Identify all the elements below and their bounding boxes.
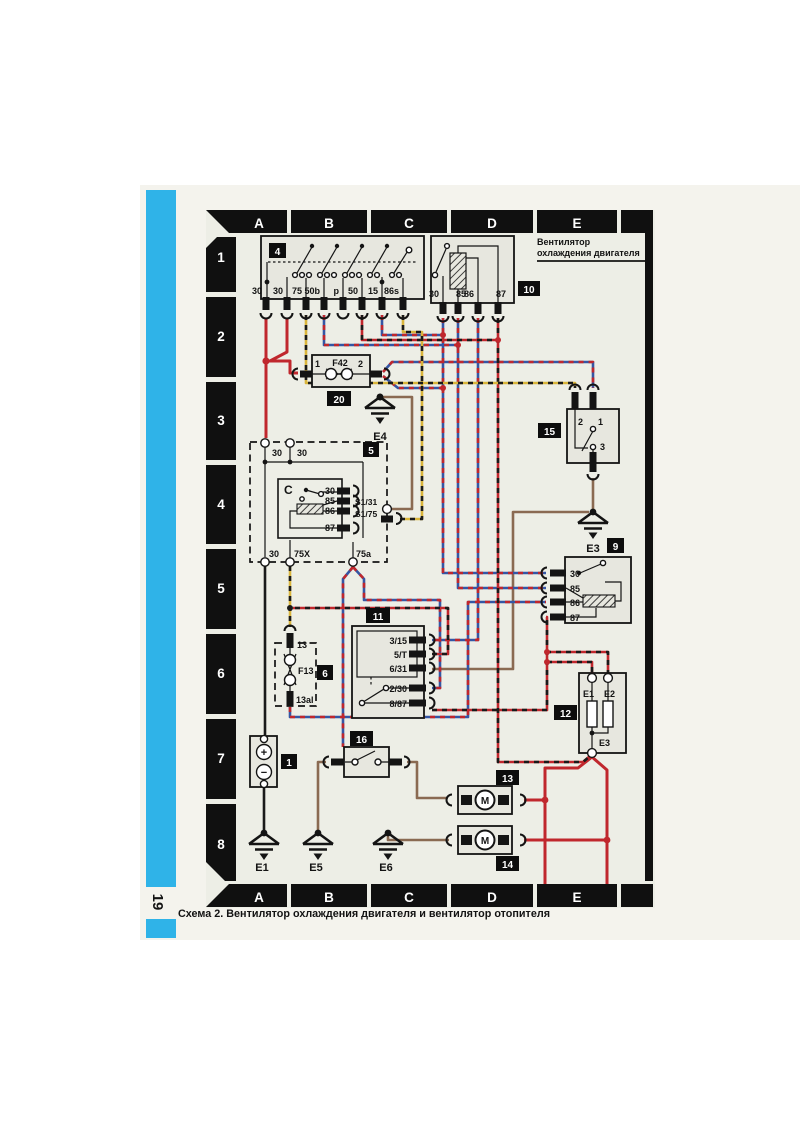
grid-row-label: 6 [217, 666, 225, 681]
svg-text:87: 87 [325, 523, 335, 533]
wiring-diagram-svg: 19 A B C D E A B C D E 1 [0, 0, 800, 1131]
svg-text:6/31: 6/31 [389, 664, 407, 674]
grid-row-label: 7 [217, 751, 225, 766]
c15-pin1: 1 [598, 417, 603, 427]
battery-minus: − [261, 767, 267, 779]
grid-row-label: 5 [217, 581, 225, 596]
f42-pin2: 2 [358, 359, 363, 369]
grid-row-label: 3 [217, 413, 225, 428]
grid-row-label: 1 [217, 250, 225, 265]
c5-link2: S1/75 [355, 509, 377, 519]
c12-e3: E3 [599, 738, 610, 748]
badge-16-label: 16 [356, 735, 368, 746]
badge-6-label: 6 [322, 669, 328, 680]
grid-col-label: E [572, 216, 581, 231]
svg-text:86: 86 [325, 506, 335, 516]
svg-text:50: 50 [348, 286, 358, 296]
c12-e1: E1 [583, 689, 594, 699]
c5-link1: S1/31 [355, 497, 377, 507]
svg-text:2/30: 2/30 [389, 684, 407, 694]
grid-col-label: E [572, 890, 581, 905]
grid-row-label: 8 [217, 837, 225, 852]
c5-bottom-30: 30 [269, 549, 279, 559]
badge-10-label: 10 [523, 285, 535, 296]
badge-15-label: 15 [544, 427, 556, 438]
scanned-page: 19 A B C D E A B C D E 1 [0, 0, 800, 1131]
grid-col-label: C [404, 890, 414, 905]
badge-1-label: 1 [286, 758, 292, 769]
relay-coil [583, 595, 615, 607]
margin-stripe-bottom [146, 919, 176, 938]
svg-text:75: 75 [292, 286, 302, 296]
svg-text:87: 87 [496, 289, 506, 299]
badge-20-label: 20 [333, 395, 345, 406]
grid-col-label: D [487, 890, 497, 905]
svg-text:86s: 86s [384, 286, 399, 296]
f13-top-label: 13 [297, 640, 307, 650]
badge-14-label: 14 [502, 860, 514, 871]
relay-coil [450, 253, 466, 289]
svg-text:8/87: 8/87 [389, 699, 407, 709]
svg-text:30: 30 [273, 286, 283, 296]
f42-pin1: 1 [315, 359, 320, 369]
ground-e3-label: E3 [586, 543, 599, 555]
grid-row-label: 2 [217, 329, 225, 344]
caption: Схема 2. Вентилятор охлаждения двигателя… [178, 908, 550, 920]
svg-text:85: 85 [570, 584, 580, 594]
svg-text:85: 85 [325, 496, 335, 506]
svg-text:87: 87 [570, 613, 580, 623]
f13-name: F13 [298, 666, 314, 676]
badge-12-label: 12 [560, 709, 572, 720]
badge-13-label: 13 [502, 774, 514, 785]
grid-row-label: 4 [217, 497, 225, 512]
margin-stripe-top [146, 190, 176, 887]
grid-col-label: B [324, 890, 334, 905]
badge-5-label: 5 [368, 446, 374, 457]
grid-col-label: A [254, 890, 264, 905]
grid-col-label: B [324, 216, 334, 231]
svg-text:30: 30 [570, 569, 580, 579]
motor14-m: M [481, 836, 489, 847]
c5-link1-connector [383, 505, 392, 514]
svg-text:5/T: 5/T [394, 650, 408, 660]
annotation-line1: Вентилятор [537, 237, 591, 247]
svg-text:15: 15 [368, 286, 378, 296]
relay-coil [297, 504, 323, 514]
ground-e5-label: E5 [309, 862, 322, 874]
battery-plus: + [261, 747, 267, 759]
grid-col-label: C [404, 216, 414, 231]
svg-text:30: 30 [252, 286, 262, 296]
ground-e6-label: E6 [379, 862, 392, 874]
annotation-line2: охлаждения двигателя [537, 248, 640, 258]
wires-black [264, 566, 265, 830]
f13-bottom-label: 13al [296, 695, 314, 705]
svg-text:3/15: 3/15 [389, 636, 407, 646]
motor13-m: M [481, 796, 489, 807]
svg-text:50b: 50b [304, 286, 320, 296]
c12-e2: E2 [604, 689, 615, 699]
svg-text:86: 86 [464, 289, 474, 299]
svg-text:30: 30 [429, 289, 439, 299]
svg-text:86: 86 [570, 598, 580, 608]
svg-text:p: p [334, 286, 340, 296]
grid-col-label: A [254, 216, 264, 231]
c5-top2: 30 [297, 448, 307, 458]
ground-e1-label: E1 [255, 862, 268, 874]
f42-name: F42 [332, 358, 348, 368]
badge-9-label: 9 [613, 542, 619, 553]
badge-4-label: 4 [275, 247, 281, 258]
c5-bottom-75a: 75a [356, 549, 372, 559]
svg-text:30: 30 [325, 486, 335, 496]
page-number: 19 [149, 894, 166, 911]
badge-11-label: 11 [373, 612, 384, 623]
c15-pin3: 3 [600, 442, 605, 452]
c15-pin2: 2 [578, 417, 583, 427]
c5-top1: 30 [272, 448, 282, 458]
component5-terminal-labels: 30 85 86 87 [325, 486, 335, 533]
c5-letter: C [284, 483, 293, 497]
c5-bottom-75x: 75X [294, 549, 310, 559]
grid-col-label: D [487, 216, 497, 231]
